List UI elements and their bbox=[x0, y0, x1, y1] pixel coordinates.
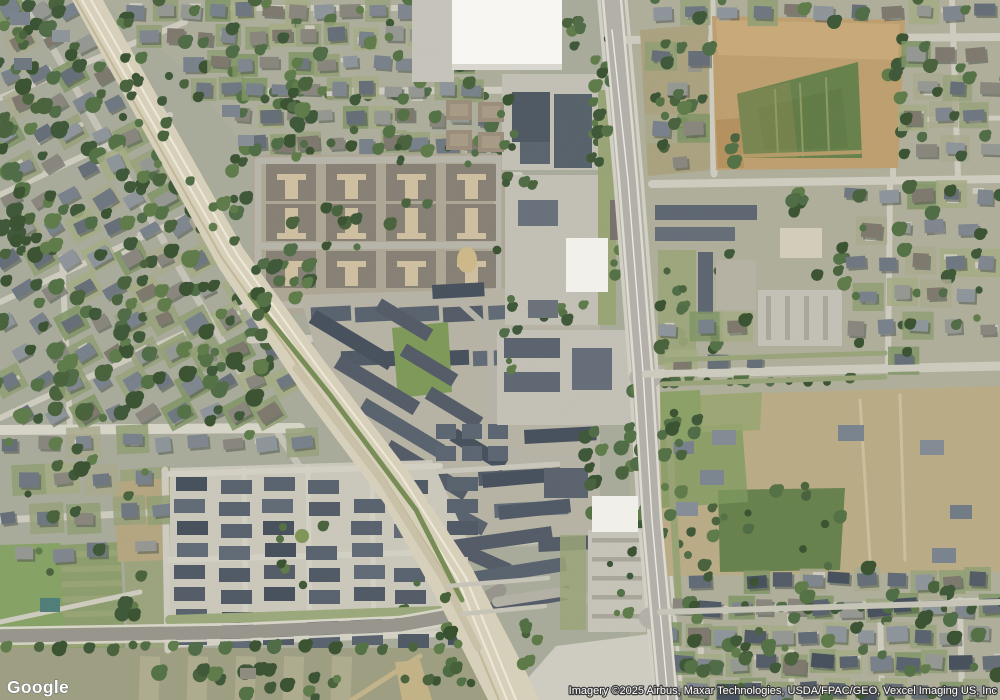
svg-text:Imagery ©2025 Airbus, Maxar Te: Imagery ©2025 Airbus, Maxar Technologies… bbox=[569, 685, 998, 697]
svg-text:Google: Google bbox=[7, 677, 69, 697]
